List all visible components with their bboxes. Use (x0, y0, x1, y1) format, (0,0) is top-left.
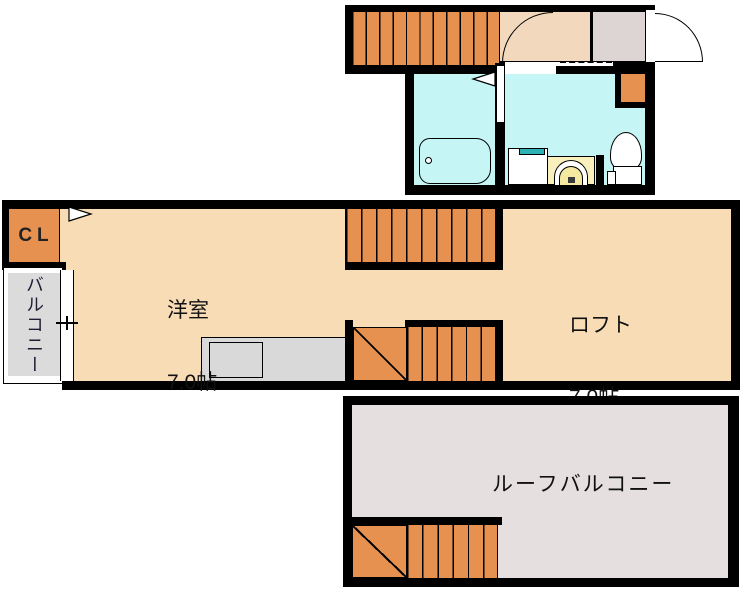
bathroom-door (497, 66, 504, 122)
loft-stairs-top-wall (405, 320, 503, 327)
bathroom-door-swing-icon (469, 70, 497, 88)
stairs-roof-treads (407, 525, 498, 578)
floorplan-canvas: CL バルコニー 洋室 7.0帖 ロフト 7.0帖 ルーフバルコニー (0, 0, 744, 591)
shoe-cabinet (621, 74, 645, 102)
main-left-wall (2, 200, 9, 270)
bathtub-drain (425, 157, 432, 164)
washroom-partition-wall (596, 155, 604, 192)
main-top-wall (2, 200, 740, 209)
loft-name: ロフト (569, 314, 632, 338)
balcony: バルコニー (3, 267, 63, 384)
entrance-door-arc-icon (655, 13, 703, 62)
main-right-wall (731, 200, 740, 390)
loft-stairs-left-wall (345, 320, 353, 384)
bath-block-notch (345, 74, 405, 195)
washbasin-drain (568, 177, 575, 183)
loft-stairs-right-wall (495, 320, 503, 381)
stairs-upper-wall (345, 262, 503, 270)
washroom-top-wall (556, 66, 655, 74)
window-tick (66, 316, 68, 330)
stairs-upper-side-wall (495, 209, 503, 270)
main-bottom-wall (62, 381, 740, 390)
genkan-floor (592, 12, 645, 62)
stairs-entrance (352, 12, 500, 65)
wall-opening (505, 62, 556, 74)
balcony-floor: バルコニー (8, 273, 60, 376)
loft-stairs-landing (353, 327, 407, 381)
balcony-label: バルコニー (21, 275, 47, 375)
stairs-loft-treads (407, 327, 495, 381)
western-room-name: 洋室 (167, 299, 217, 323)
closet: CL (9, 209, 60, 262)
western-room-label: 洋室 7.0帖 (167, 251, 217, 443)
washing-machine-pan-trim (519, 148, 545, 155)
stairs-upper-run (345, 209, 495, 262)
shoe-cabinet-wall (615, 102, 645, 108)
toilet-flush-unit (607, 171, 616, 185)
toilet-tank (613, 166, 642, 185)
room-door-swing-icon (67, 205, 93, 223)
roof-stairs-landing (352, 525, 407, 578)
closet-label: CL (14, 225, 53, 247)
western-room-size: 7.0帖 (167, 371, 217, 395)
roof-stairs-top-wall (352, 517, 502, 525)
dashed-partition-line (560, 61, 612, 63)
entrance-door-opening (645, 10, 655, 62)
roof-balcony-label: ルーフバルコニー (492, 468, 674, 498)
